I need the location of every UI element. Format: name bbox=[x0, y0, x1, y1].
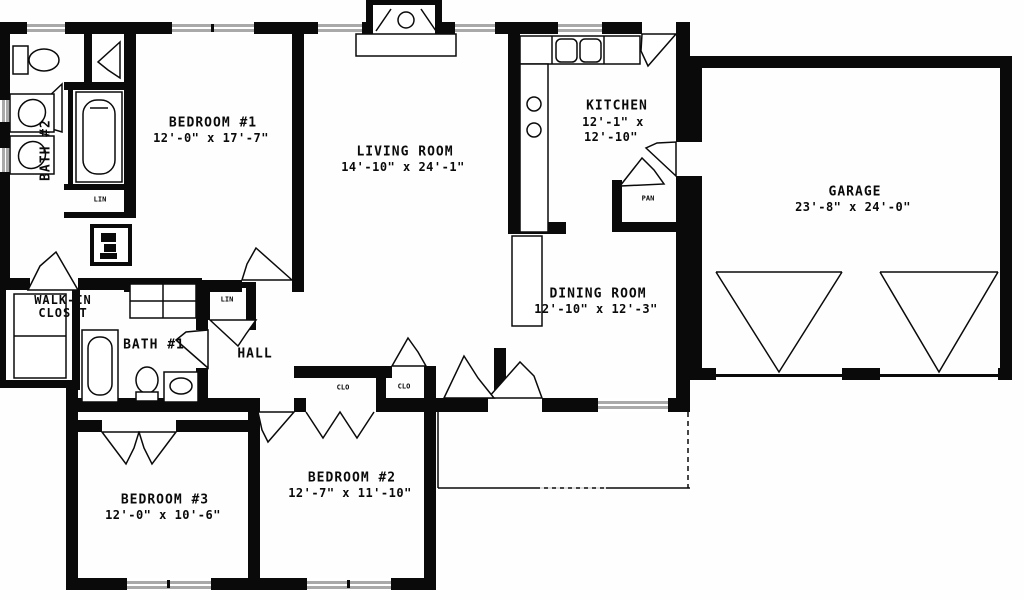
window-top-living-right bbox=[455, 22, 495, 34]
fireplace-icon bbox=[356, 0, 456, 56]
room-label-bedroom3: BEDROOM #3 bbox=[121, 494, 209, 507]
window-bedroom2 bbox=[307, 578, 391, 590]
door-hall-dining bbox=[444, 356, 494, 398]
toilet-icon bbox=[13, 46, 59, 74]
room-label-kitchen: KITCHEN bbox=[586, 100, 648, 113]
window-top-bath2 bbox=[27, 22, 65, 34]
closet-label-right: CLO bbox=[398, 384, 411, 391]
room-dims-bedroom3: 12'-0" x 10'-6" bbox=[105, 509, 221, 521]
room-label-bath2: BATH #2 bbox=[40, 119, 53, 181]
room-dims-bedroom2: 12'-7" x 11'-10" bbox=[288, 487, 412, 499]
room-dims-kitchen-2: 12'-10" bbox=[584, 131, 638, 143]
window-left-bath2-b bbox=[0, 148, 10, 172]
room-dims-dining: 12'-10" x 12'-3" bbox=[534, 303, 658, 315]
room-label-hall: HALL bbox=[237, 348, 272, 361]
window-top-living-left bbox=[318, 22, 362, 34]
closet-label-pantry: PAN bbox=[642, 196, 655, 203]
door-pantry bbox=[620, 158, 664, 186]
closet-label-linen-hall: LIN bbox=[221, 297, 234, 304]
patio-outline bbox=[438, 412, 690, 488]
room-label-dining: DINING ROOM bbox=[549, 288, 646, 301]
room-label-living: LIVING ROOM bbox=[356, 146, 453, 159]
window-bedroom3 bbox=[127, 578, 211, 590]
closet-label-linen-bath: LIN bbox=[94, 197, 107, 204]
window-top-bedroom1 bbox=[172, 22, 254, 34]
door-bedroom3-left bbox=[102, 432, 139, 464]
door-closet-bifold bbox=[306, 412, 374, 438]
door-bath2-closet bbox=[98, 42, 120, 78]
bathtub-icon bbox=[76, 92, 122, 182]
door-back-entry bbox=[641, 34, 676, 66]
floor-plan: BEDROOM #1 12'-0" x 17'-7" LIVING ROOM 1… bbox=[0, 0, 1024, 600]
room-dims-kitchen-1: 12'-1" x bbox=[582, 116, 644, 128]
door-bedroom3-right bbox=[139, 432, 176, 464]
window-left-bath2-a bbox=[0, 100, 10, 122]
door-bedroom1 bbox=[242, 248, 292, 280]
toilet-icon bbox=[136, 367, 158, 401]
door-linen-hall bbox=[210, 320, 256, 346]
room-label-walkin-2: CLOSET bbox=[38, 307, 87, 319]
door-walkin-closet bbox=[28, 252, 78, 290]
garage-door-right bbox=[880, 272, 998, 372]
room-dims-living: 14'-10" x 24'-1" bbox=[341, 161, 465, 173]
room-label-bedroom2: BEDROOM #2 bbox=[308, 472, 396, 485]
garage-door-left bbox=[716, 272, 842, 372]
sink-icon bbox=[164, 372, 198, 402]
bathtub-icon bbox=[82, 330, 118, 402]
room-dims-bedroom1: 12'-0" x 17'-7" bbox=[153, 132, 269, 144]
furnace-unit bbox=[92, 226, 130, 264]
room-label-walkin-1: WALK-IN bbox=[34, 294, 92, 306]
window-dining bbox=[598, 398, 668, 412]
room-label-bedroom1: BEDROOM #1 bbox=[169, 117, 257, 130]
room-label-garage: GARAGE bbox=[829, 186, 882, 199]
room-label-bath1: BATH #1 bbox=[123, 339, 185, 352]
fixtures bbox=[10, 0, 998, 488]
door-closet-right bbox=[392, 338, 426, 366]
room-dims-garage: 23'-8" x 24'-0" bbox=[795, 201, 911, 213]
door-bedroom2 bbox=[258, 412, 294, 442]
shower-icon bbox=[130, 284, 196, 318]
closet-label-left: CLO bbox=[337, 385, 350, 392]
window-top-kitchen bbox=[558, 22, 602, 34]
